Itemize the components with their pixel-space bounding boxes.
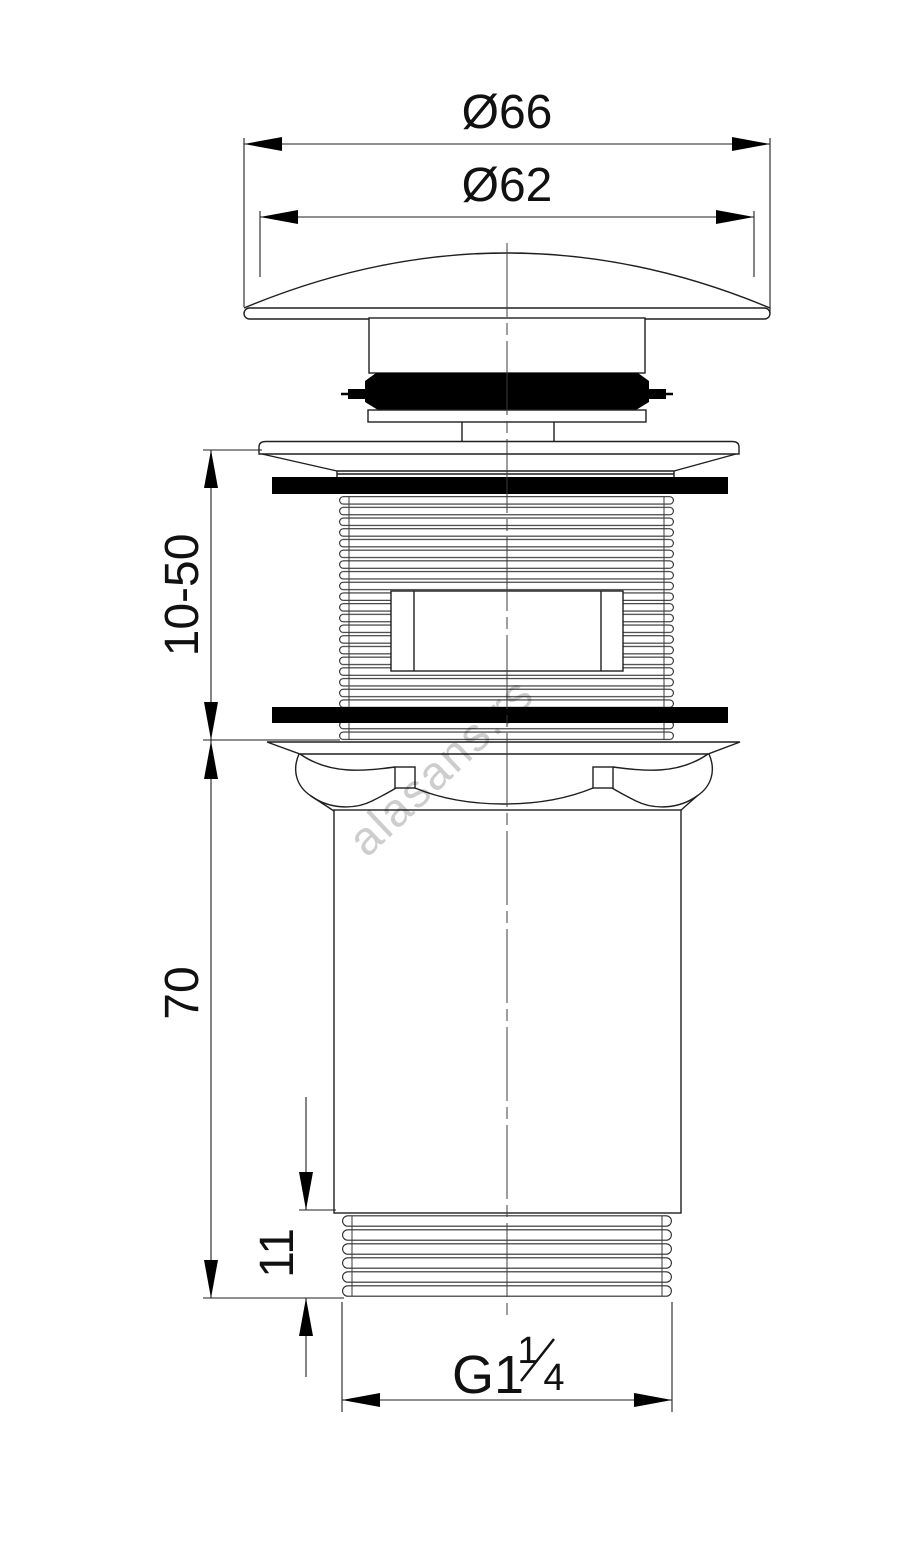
dimension-thread-spec: G1 1 4 (342, 1302, 672, 1412)
dim-label-thread-denominator: 4 (543, 1357, 564, 1399)
dim-label-adjustable-height: 10-50 (156, 534, 209, 657)
dim-label-thread-numerator: 1 (517, 1330, 538, 1372)
top-flange (259, 442, 739, 478)
dim-label-cap-inner-diameter: Ø62 (462, 159, 553, 212)
technical-drawing-page: Ø66 Ø62 10-50 70 11 (0, 0, 917, 1555)
dim-label-thread-prefix: G1 (452, 1345, 524, 1405)
wavy-locknut (296, 754, 713, 811)
dim-label-body-length: 70 (156, 966, 209, 1019)
lower-washer-plate (267, 742, 740, 754)
drain-valve-technical-drawing: Ø66 Ø62 10-50 70 11 (0, 0, 917, 1555)
dimension-body-length: 70 (156, 740, 344, 1298)
mechanism-stubs (462, 422, 554, 441)
dimension-bottom-thread-length: 11 (251, 1097, 336, 1377)
upper-gasket-band (272, 477, 728, 494)
dim-label-bottom-thread-length: 11 (251, 1228, 304, 1278)
dim-label-cap-outer-diameter: Ø66 (462, 86, 553, 139)
